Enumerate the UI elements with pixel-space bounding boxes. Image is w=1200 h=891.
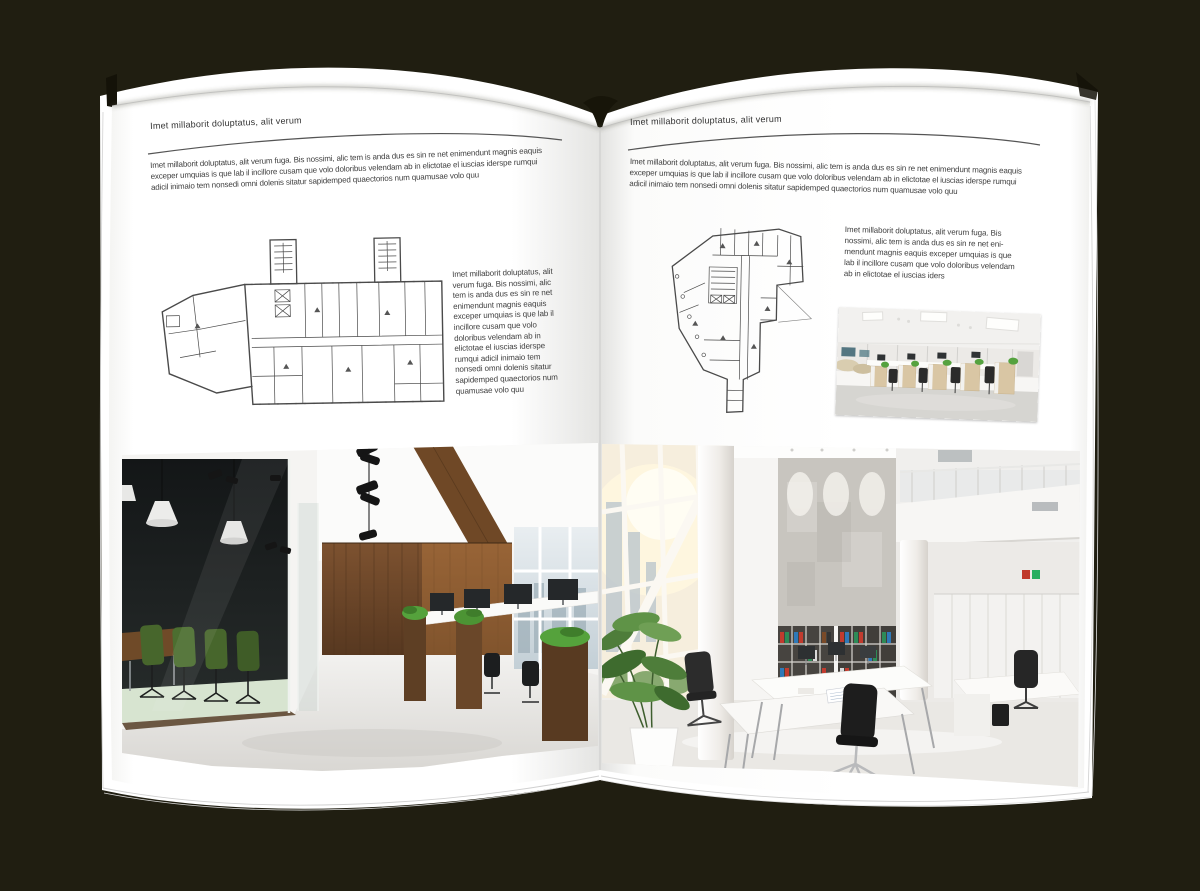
waste-bin bbox=[992, 704, 1009, 726]
magazine-spread-mockup: Imet millaborit doluptatus, alit verum I… bbox=[0, 0, 1200, 891]
corner-shadow-left bbox=[106, 74, 117, 108]
right-page-side-text: Imet millaborit doluptatus, alit verum f… bbox=[844, 224, 1023, 283]
glass-partition bbox=[298, 503, 318, 711]
office-photo-dark bbox=[122, 443, 598, 775]
left-page-side-text: Imet millaborit doluptatus, alit verum f… bbox=[452, 267, 564, 397]
office-photo-small bbox=[835, 307, 1041, 422]
floor-plan-right bbox=[652, 224, 815, 425]
office-photo-bright bbox=[602, 442, 1080, 788]
floor-plan-left bbox=[158, 235, 446, 412]
mezzanine bbox=[896, 442, 1080, 546]
